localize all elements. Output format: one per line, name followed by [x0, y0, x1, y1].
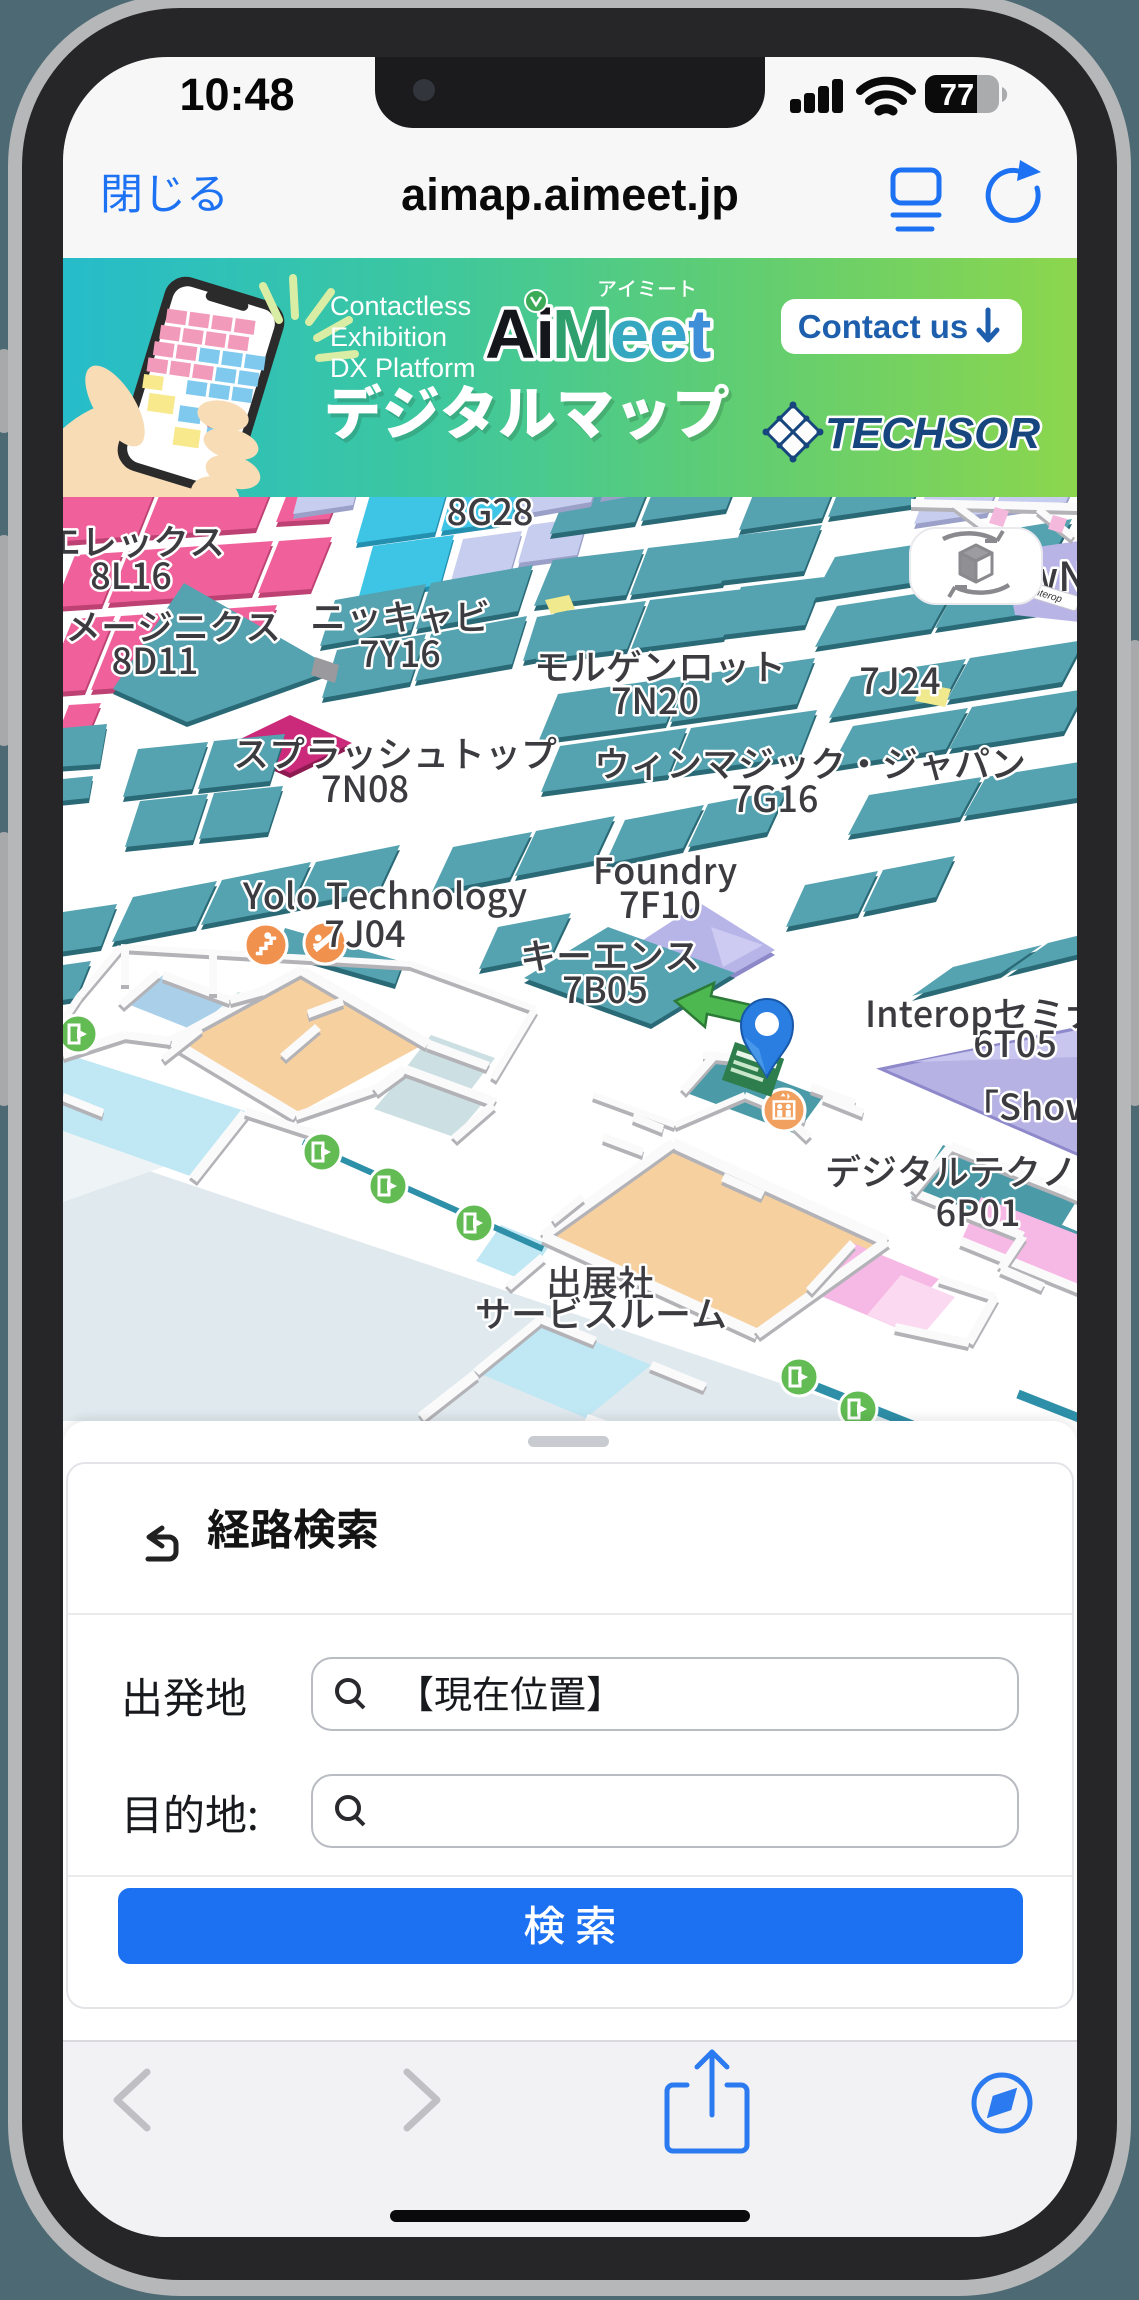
svg-text:e: e: [649, 295, 688, 373]
svg-text:aimap.aimeet.jp: aimap.aimeet.jp: [401, 169, 739, 220]
svg-text:Contactless: Contactless: [330, 291, 471, 321]
svg-text:t: t: [688, 295, 711, 373]
svg-text:M: M: [552, 295, 610, 373]
svg-text:Contact us: Contact us: [798, 308, 969, 345]
svg-text:Exhibition: Exhibition: [330, 322, 447, 352]
svg-text:DX Platform: DX Platform: [330, 353, 476, 383]
svg-text:e: e: [610, 295, 649, 373]
svg-text:TECHSOR: TECHSOR: [825, 409, 1040, 458]
